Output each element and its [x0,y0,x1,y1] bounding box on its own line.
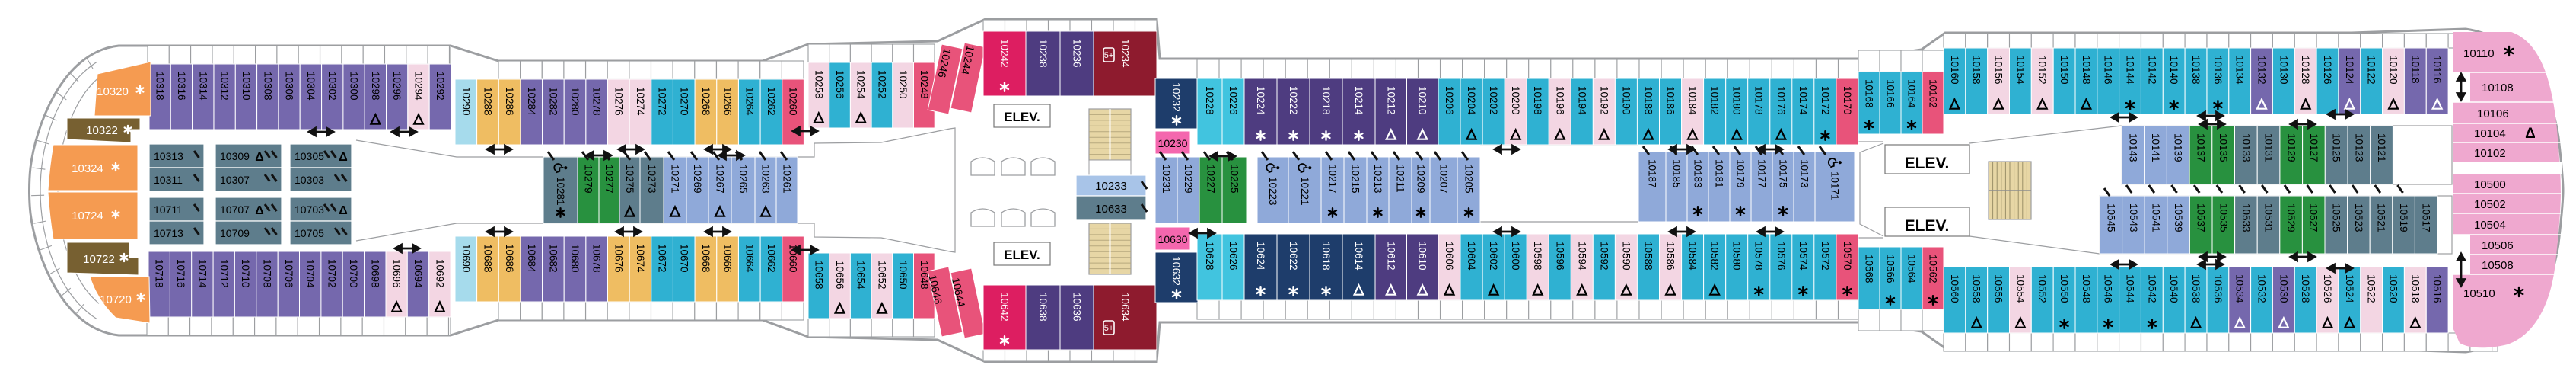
svg-text:10122: 10122 [2366,56,2377,85]
svg-text:10680: 10680 [569,244,581,273]
svg-text:10175: 10175 [1778,159,1789,188]
svg-text:10307: 10307 [220,174,250,186]
svg-text:10704: 10704 [304,259,316,288]
svg-text:10311: 10311 [154,174,183,186]
svg-text:10552: 10552 [2036,274,2048,303]
svg-text:10316: 10316 [176,72,187,101]
svg-text:10580: 10580 [1731,242,1743,271]
svg-text:10171: 10171 [1829,171,1841,200]
svg-text:10694: 10694 [412,259,424,288]
svg-text:10188: 10188 [1643,86,1654,115]
svg-text:10133: 10133 [2240,133,2252,162]
svg-text:10688: 10688 [482,244,494,273]
svg-text:10566: 10566 [1885,255,1896,283]
svg-text:10500: 10500 [2474,178,2506,191]
svg-text:10606: 10606 [1444,242,1455,271]
svg-text:10280: 10280 [569,87,581,116]
svg-text:10574: 10574 [1797,242,1809,271]
svg-text:10135: 10135 [2218,133,2229,162]
svg-text:10540: 10540 [2168,274,2180,303]
svg-text:10274: 10274 [635,87,646,116]
svg-text:10265: 10265 [737,165,749,194]
svg-text:10234: 10234 [1119,39,1131,68]
svg-text:10698: 10698 [369,259,381,288]
svg-text:10523: 10523 [2353,203,2364,232]
svg-text:10724: 10724 [72,210,103,223]
svg-text:10714: 10714 [196,259,208,288]
svg-text:10187: 10187 [1647,159,1658,188]
svg-text:10183: 10183 [1692,159,1704,188]
svg-text:10209: 10209 [1415,165,1427,194]
svg-text:10292: 10292 [435,72,446,101]
svg-text:10706: 10706 [283,259,295,288]
svg-text:10279: 10279 [583,165,594,194]
svg-text:10154: 10154 [2014,56,2026,85]
svg-text:10179: 10179 [1735,159,1747,188]
svg-text:5+: 5+ [1104,324,1114,333]
svg-text:10140: 10140 [2168,56,2180,85]
svg-text:10166: 10166 [1885,79,1896,108]
svg-text:10624: 10624 [1255,242,1266,271]
svg-text:10185: 10185 [1671,159,1683,188]
svg-text:10256: 10256 [834,70,845,99]
svg-text:10184: 10184 [1687,86,1699,115]
svg-text:10110: 10110 [2463,47,2495,60]
svg-text:10312: 10312 [219,72,231,101]
svg-text:10554: 10554 [2014,274,2026,303]
svg-text:10720: 10720 [100,293,132,306]
svg-text:10131: 10131 [2263,133,2275,162]
svg-text:10194: 10194 [1576,86,1587,115]
svg-text:10304: 10304 [305,72,317,101]
svg-text:10152: 10152 [2036,56,2048,85]
svg-text:10213: 10213 [1372,165,1384,194]
svg-text:10136: 10136 [2212,56,2224,85]
svg-text:10529: 10529 [2285,203,2297,232]
svg-text:10211: 10211 [1395,165,1406,193]
svg-text:10543: 10543 [2128,203,2139,232]
svg-text:10702: 10702 [326,259,338,288]
svg-text:10708: 10708 [262,259,273,288]
svg-text:10558: 10558 [1971,274,1982,303]
svg-text:10268: 10268 [700,87,712,116]
svg-text:10168: 10168 [1864,79,1875,108]
svg-text:10700: 10700 [348,259,359,288]
svg-text:10264: 10264 [744,87,755,116]
svg-text:10106: 10106 [2477,107,2509,120]
svg-text:10121: 10121 [2376,133,2387,162]
svg-text:ELEV.: ELEV. [1905,155,1950,172]
svg-text:10262: 10262 [766,87,777,116]
svg-text:10670: 10670 [678,244,689,273]
svg-text:10531: 10531 [2263,203,2275,232]
svg-text:10160: 10160 [1949,56,1960,85]
svg-text:10510: 10510 [2463,287,2495,300]
svg-text:10517: 10517 [2421,203,2432,232]
svg-text:10678: 10678 [591,244,603,273]
svg-text:10584: 10584 [1687,242,1699,271]
svg-text:10261: 10261 [782,165,793,194]
svg-text:10102: 10102 [2474,147,2506,160]
svg-text:10712: 10712 [218,259,230,288]
svg-text:10658: 10658 [813,261,824,290]
svg-text:10229: 10229 [1183,165,1194,194]
svg-text:10288: 10288 [482,87,494,116]
svg-text:10320: 10320 [97,85,129,98]
svg-text:10156: 10156 [1993,56,2004,85]
svg-text:Δ: Δ [339,151,348,164]
svg-text:10158: 10158 [1971,56,1982,85]
svg-text:10309: 10309 [220,150,250,162]
svg-text:10600: 10600 [1510,242,1521,271]
svg-text:10180: 10180 [1731,86,1743,115]
svg-text:10134: 10134 [2234,56,2246,85]
svg-text:10172: 10172 [1820,86,1831,115]
svg-text:10596: 10596 [1554,242,1565,271]
svg-text:5+: 5+ [1104,51,1114,60]
svg-text:10138: 10138 [2190,56,2202,85]
svg-text:10314: 10314 [197,72,209,101]
svg-text:10310: 10310 [240,72,252,101]
svg-text:10650: 10650 [897,261,909,290]
svg-text:10236: 10236 [1071,39,1083,68]
svg-text:10696: 10696 [391,259,403,288]
svg-text:10610: 10610 [1417,242,1428,271]
svg-text:10536: 10536 [2212,274,2224,303]
svg-text:10214: 10214 [1353,86,1364,115]
svg-text:10124: 10124 [2344,56,2355,85]
svg-text:10271: 10271 [670,165,681,194]
svg-text:10298: 10298 [370,72,381,101]
svg-text:10302: 10302 [326,72,338,101]
svg-text:10238: 10238 [1037,39,1049,68]
svg-text:10290: 10290 [460,87,472,116]
svg-text:10535: 10535 [2218,203,2229,232]
svg-text:10132: 10132 [2256,56,2268,85]
svg-text:10545: 10545 [2105,203,2116,232]
svg-text:10116: 10116 [2431,56,2443,84]
svg-text:10207: 10207 [1438,165,1450,194]
svg-text:10146: 10146 [2103,56,2114,85]
svg-text:10190: 10190 [1620,86,1632,115]
svg-text:10718: 10718 [154,259,165,288]
svg-text:10196: 10196 [1554,86,1565,115]
svg-text:10139: 10139 [2173,133,2184,162]
svg-text:10266: 10266 [722,87,734,116]
svg-text:10592: 10592 [1598,242,1610,271]
svg-text:10313: 10313 [154,150,183,162]
svg-text:10205: 10205 [1463,165,1475,194]
svg-text:10709: 10709 [220,227,250,239]
svg-text:10628: 10628 [1204,242,1215,271]
svg-text:10278: 10278 [591,87,603,116]
svg-text:10532: 10532 [2256,274,2268,303]
svg-text:10504: 10504 [2474,219,2506,232]
svg-text:10530: 10530 [2278,274,2289,303]
svg-text:10181: 10181 [1714,159,1725,188]
svg-text:Δ: Δ [255,151,264,164]
svg-text:10544: 10544 [2125,274,2136,303]
svg-text:10502: 10502 [2474,198,2506,211]
svg-text:10141: 10141 [2150,133,2161,162]
svg-text:10538: 10538 [2190,274,2202,303]
svg-text:10564: 10564 [1906,255,1918,283]
svg-text:10224: 10224 [1255,86,1266,115]
svg-text:10526: 10526 [2322,274,2333,303]
svg-text:10148: 10148 [2081,56,2092,85]
svg-text:10242: 10242 [999,39,1011,68]
svg-text:10126: 10126 [2322,56,2333,85]
svg-text:10676: 10676 [613,244,624,273]
svg-text:10716: 10716 [175,259,186,288]
svg-text:10308: 10308 [262,72,273,101]
svg-text:10232: 10232 [1170,82,1183,112]
svg-text:10294: 10294 [413,72,425,101]
svg-text:10703: 10703 [295,203,324,216]
svg-text:10182: 10182 [1709,86,1721,115]
svg-text:10143: 10143 [2127,133,2138,162]
svg-text:10672: 10672 [657,244,668,273]
svg-text:10277: 10277 [603,165,615,194]
svg-text:10263: 10263 [760,165,772,194]
svg-text:10225: 10225 [1229,165,1240,194]
svg-text:10578: 10578 [1753,242,1765,271]
svg-text:10212: 10212 [1385,86,1396,115]
svg-text:10231: 10231 [1161,165,1172,194]
svg-text:10322: 10322 [86,124,118,137]
svg-text:10602: 10602 [1488,242,1499,271]
svg-text:10541: 10541 [2151,203,2162,232]
svg-text:10539: 10539 [2173,203,2184,232]
svg-text:10632: 10632 [1170,256,1183,286]
svg-text:10127: 10127 [2308,133,2320,162]
svg-text:10652: 10652 [876,261,887,290]
svg-text:10173: 10173 [1799,159,1810,188]
svg-text:10626: 10626 [1228,242,1239,271]
svg-text:10206: 10206 [1444,86,1455,115]
svg-text:10273: 10273 [646,165,658,194]
svg-text:10594: 10594 [1576,242,1587,271]
svg-text:10198: 10198 [1532,86,1543,115]
svg-text:10270: 10270 [678,87,689,116]
svg-text:10306: 10306 [284,72,295,101]
svg-text:10272: 10272 [657,87,668,116]
svg-text:10598: 10598 [1532,242,1543,271]
svg-text:10518: 10518 [2409,274,2421,303]
svg-text:10128: 10128 [2300,56,2311,85]
svg-text:10633: 10633 [1095,203,1127,216]
svg-text:10200: 10200 [1510,86,1521,115]
svg-text:10125: 10125 [2331,133,2342,162]
svg-text:10282: 10282 [547,87,559,116]
svg-text:10713: 10713 [154,227,183,239]
svg-text:10707: 10707 [220,203,250,216]
svg-text:ELEV.: ELEV. [1004,110,1040,124]
svg-text:10178: 10178 [1753,86,1765,115]
svg-text:10250: 10250 [897,70,909,99]
svg-text:10215: 10215 [1350,165,1361,194]
svg-text:10634: 10634 [1119,293,1131,322]
svg-text:10638: 10638 [1037,293,1049,322]
svg-text:10614: 10614 [1353,242,1364,271]
svg-text:10682: 10682 [547,244,559,273]
svg-text:10560: 10560 [1949,274,1960,303]
svg-text:10525: 10525 [2330,203,2342,232]
svg-text:10572: 10572 [1820,242,1831,271]
svg-text:10524: 10524 [2344,274,2355,303]
svg-text:10519: 10519 [2398,203,2409,232]
svg-text:10305: 10305 [295,150,324,162]
svg-text:Δ: Δ [2525,126,2536,142]
svg-text:10233: 10233 [1095,180,1127,193]
svg-text:10520: 10520 [2388,274,2399,303]
svg-text:10150: 10150 [2059,56,2070,85]
svg-text:10684: 10684 [526,244,537,273]
svg-text:10104: 10104 [2474,127,2506,140]
svg-text:10260: 10260 [788,87,799,116]
svg-text:10528: 10528 [2300,274,2311,303]
svg-text:10164: 10164 [1906,79,1918,108]
svg-text:10230: 10230 [1158,137,1188,149]
svg-text:10506: 10506 [2482,239,2514,252]
svg-text:10668: 10668 [700,244,712,273]
svg-text:10548: 10548 [2081,274,2092,303]
svg-text:10546: 10546 [2103,274,2114,303]
svg-text:10630: 10630 [1158,233,1188,245]
svg-text:10227: 10227 [1205,165,1217,194]
svg-text:10576: 10576 [1775,242,1787,271]
svg-text:10303: 10303 [295,174,324,186]
svg-text:Δ: Δ [255,204,264,217]
svg-text:10324: 10324 [72,162,103,175]
svg-text:10674: 10674 [635,244,646,273]
svg-text:10286: 10286 [504,87,515,116]
svg-text:10570: 10570 [1842,242,1853,271]
svg-text:10218: 10218 [1320,86,1332,115]
svg-text:10269: 10269 [692,165,703,194]
svg-text:10267: 10267 [715,165,726,194]
svg-text:10642: 10642 [999,293,1011,322]
svg-text:10300: 10300 [349,72,360,101]
svg-text:10586: 10586 [1665,242,1676,271]
svg-text:10590: 10590 [1620,242,1632,271]
svg-text:10722: 10722 [83,253,115,266]
svg-text:10522: 10522 [2366,274,2377,303]
svg-text:10284: 10284 [526,87,537,116]
svg-text:10662: 10662 [766,244,777,273]
svg-text:10252: 10252 [876,70,887,99]
svg-text:10223: 10223 [1267,177,1278,206]
svg-text:10710: 10710 [240,259,251,288]
svg-text:10588: 10588 [1643,242,1654,271]
svg-text:10296: 10296 [391,72,403,101]
svg-text:10170: 10170 [1842,86,1853,115]
svg-text:10654: 10654 [855,261,867,290]
svg-text:10144: 10144 [2125,56,2136,85]
svg-text:10666: 10666 [722,244,734,273]
svg-text:10550: 10550 [2059,274,2070,303]
svg-text:10604: 10604 [1466,242,1477,271]
svg-text:10537: 10537 [2195,203,2207,232]
svg-text:10281: 10281 [555,177,566,206]
svg-text:10123: 10123 [2353,133,2364,162]
svg-text:10711: 10711 [154,203,183,216]
svg-text:10648: 10648 [919,261,930,290]
svg-text:10176: 10176 [1775,86,1787,115]
svg-text:10582: 10582 [1709,242,1721,271]
svg-text:10248: 10248 [919,70,930,99]
svg-text:10618: 10618 [1320,242,1332,271]
svg-text:10162: 10162 [1928,79,1939,108]
svg-text:10521: 10521 [2376,203,2387,232]
svg-text:10318: 10318 [154,72,166,101]
svg-text:10254: 10254 [855,70,867,99]
svg-text:10108: 10108 [2482,82,2514,94]
svg-text:10137: 10137 [2195,133,2206,162]
svg-text:10686: 10686 [504,244,515,273]
svg-text:10226: 10226 [1228,86,1239,115]
svg-text:10534: 10534 [2234,274,2246,303]
svg-text:Δ: Δ [339,204,348,217]
svg-text:10129: 10129 [2285,133,2297,162]
svg-text:10542: 10542 [2146,274,2157,303]
svg-text:10222: 10222 [1288,86,1299,115]
svg-text:10174: 10174 [1797,86,1809,115]
svg-text:10120: 10120 [2388,56,2399,85]
svg-text:ELEV.: ELEV. [1905,217,1950,235]
svg-text:10202: 10202 [1488,86,1499,115]
svg-text:10508: 10508 [2482,259,2514,272]
svg-text:10275: 10275 [624,165,635,194]
svg-text:10664: 10664 [744,244,755,273]
svg-text:10516: 10516 [2431,274,2443,303]
svg-text:10562: 10562 [1928,255,1939,283]
svg-text:10692: 10692 [434,259,445,288]
svg-text:10568: 10568 [1864,255,1875,283]
svg-text:10612: 10612 [1385,242,1396,271]
svg-text:10690: 10690 [460,244,472,273]
svg-text:10142: 10142 [2146,56,2157,85]
svg-text:10556: 10556 [1993,274,2004,303]
svg-text:10204: 10204 [1466,86,1477,115]
svg-text:10276: 10276 [613,87,624,116]
svg-text:10622: 10622 [1288,242,1299,271]
svg-text:10177: 10177 [1756,159,1768,188]
svg-text:10527: 10527 [2308,203,2320,232]
svg-text:ELEV.: ELEV. [1004,248,1040,262]
svg-text:10228: 10228 [1204,86,1215,115]
svg-text:10533: 10533 [2240,203,2252,232]
svg-text:10130: 10130 [2278,56,2289,85]
svg-text:10186: 10186 [1665,86,1676,115]
svg-text:10118: 10118 [2409,56,2421,84]
svg-text:10258: 10258 [813,70,824,99]
svg-text:10636: 10636 [1071,293,1083,322]
svg-text:10656: 10656 [834,261,845,290]
svg-text:10705: 10705 [295,227,324,239]
svg-text:10221: 10221 [1299,177,1310,206]
svg-text:10217: 10217 [1327,165,1339,194]
svg-text:10210: 10210 [1417,86,1428,115]
svg-text:10192: 10192 [1598,86,1610,115]
